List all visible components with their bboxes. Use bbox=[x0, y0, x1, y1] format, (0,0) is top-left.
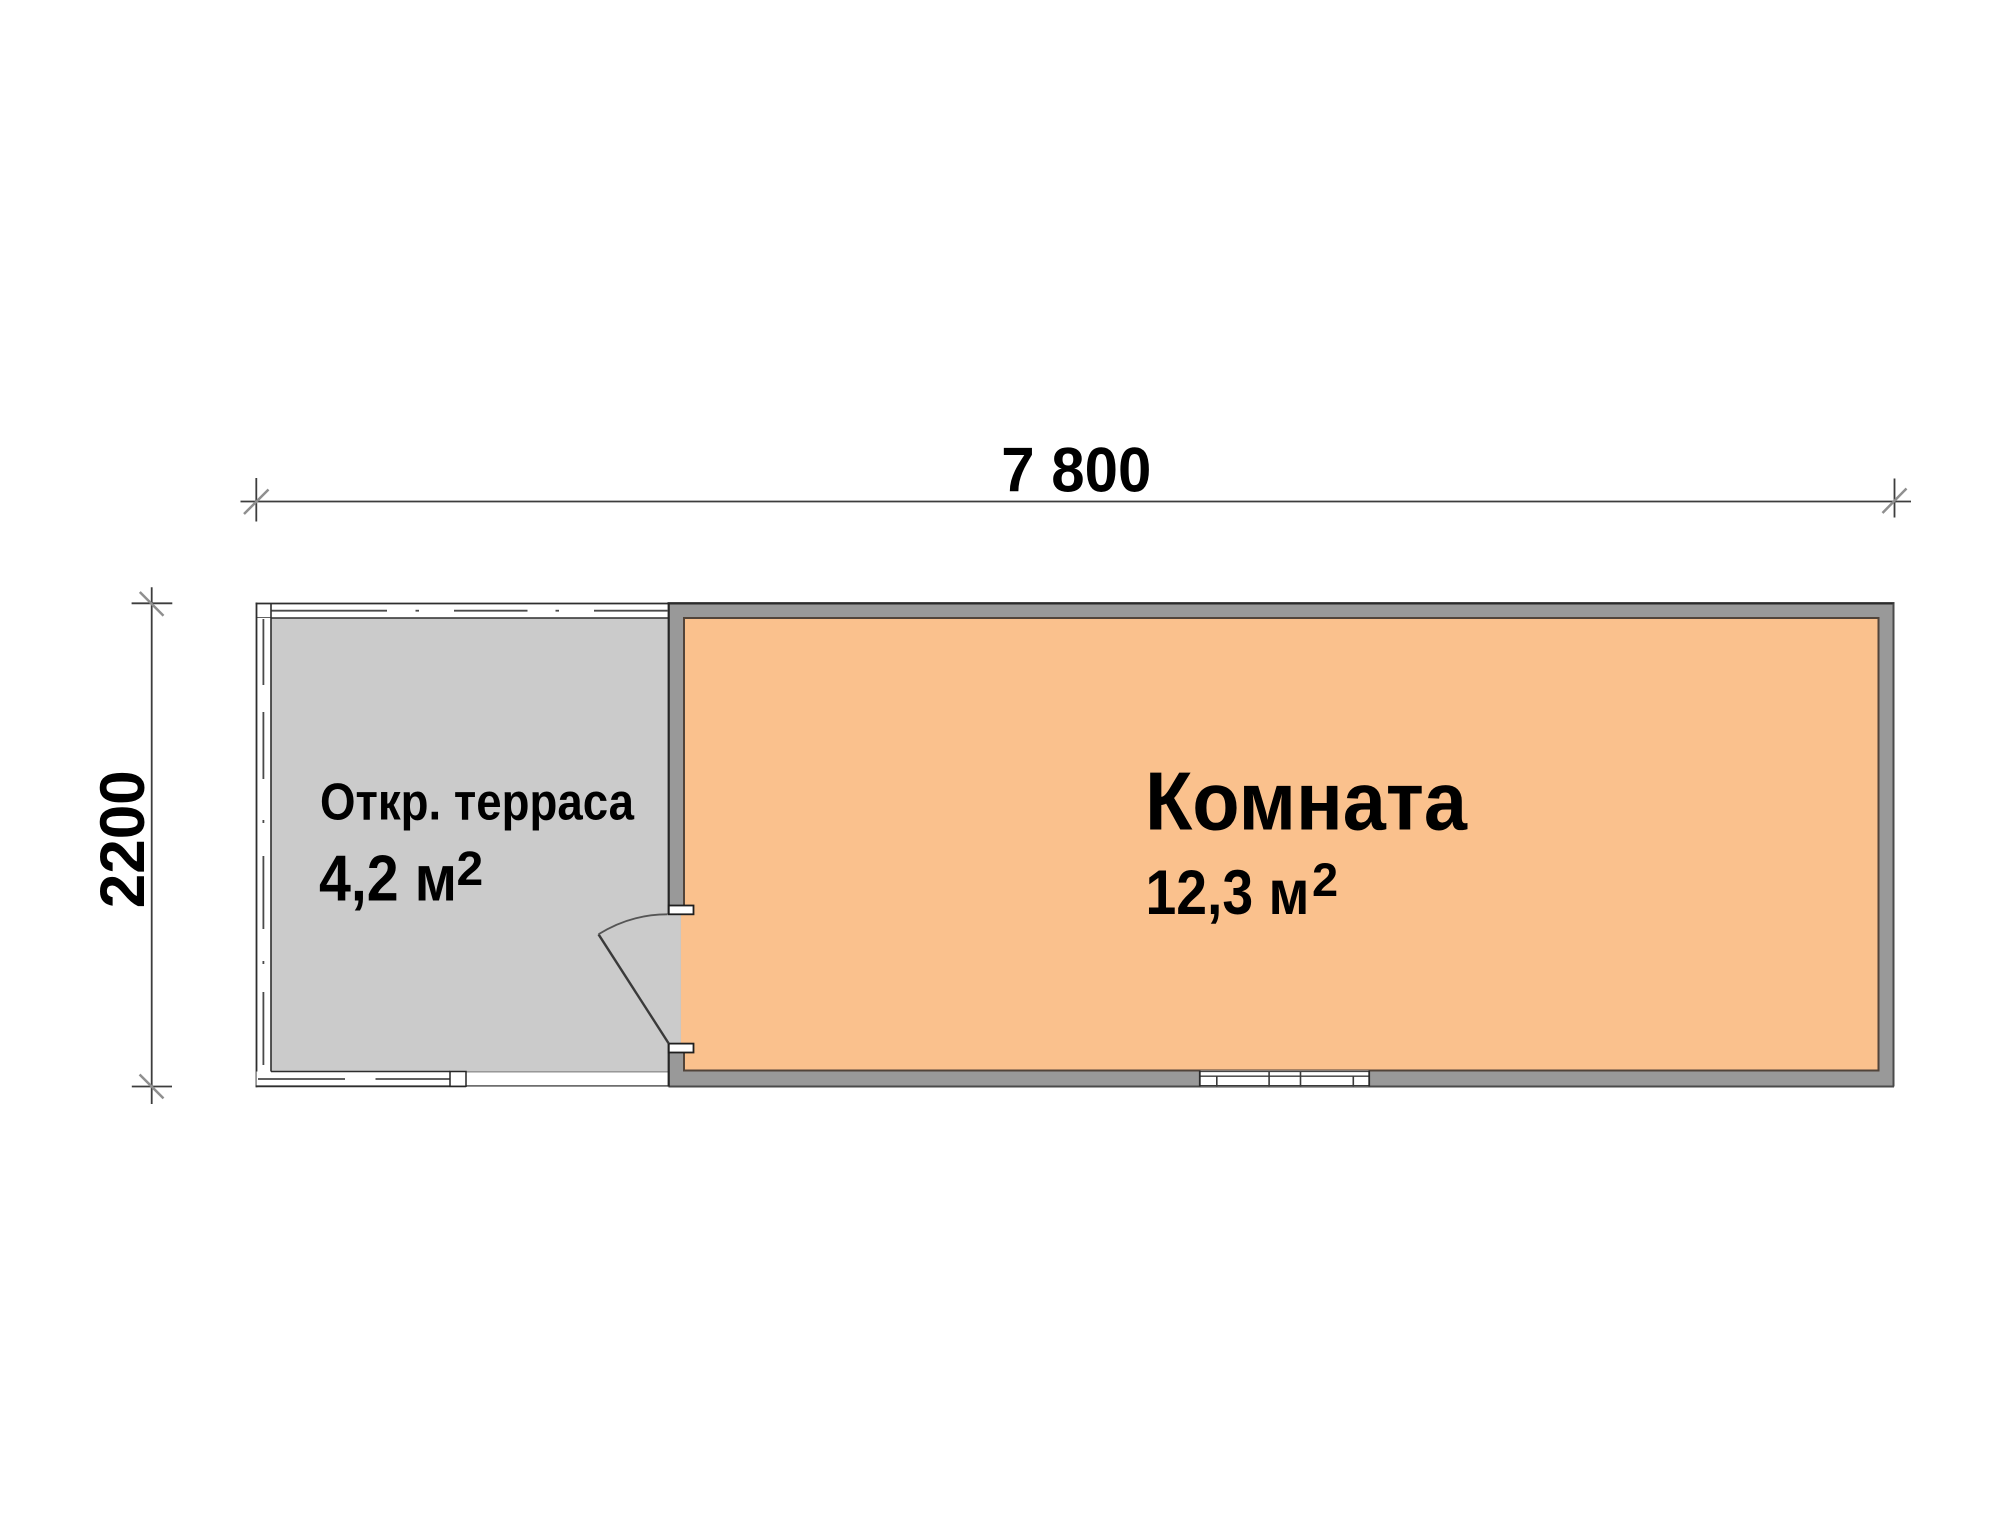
svg-text:Откр. терраса: Откр. терраса bbox=[320, 772, 634, 830]
svg-text:4,2 м: 4,2 м bbox=[319, 842, 457, 915]
svg-text:7 800: 7 800 bbox=[1001, 435, 1151, 505]
svg-text:12,3 м: 12,3 м bbox=[1146, 858, 1310, 928]
svg-text:2: 2 bbox=[457, 843, 484, 896]
svg-text:Комната: Комната bbox=[1145, 754, 1468, 847]
svg-text:2: 2 bbox=[1312, 853, 1338, 906]
svg-text:2200: 2200 bbox=[88, 770, 158, 908]
